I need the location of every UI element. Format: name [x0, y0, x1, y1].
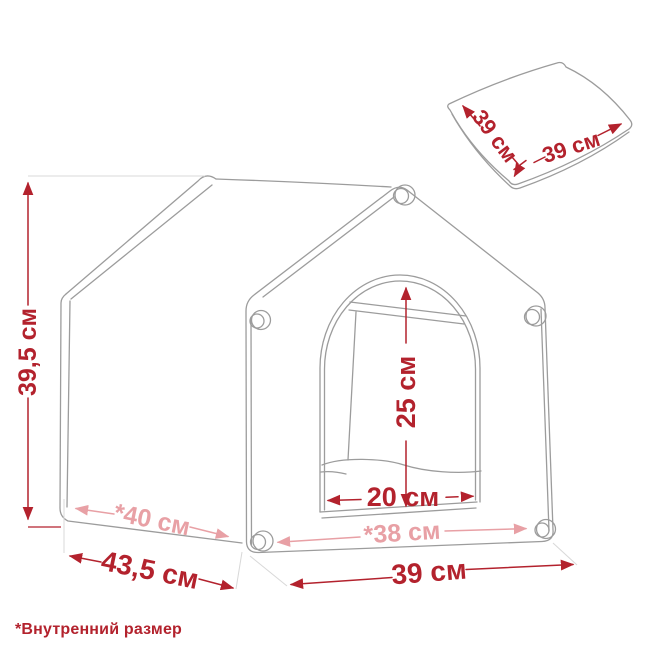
- door-width-dimension-label: 20 см: [367, 482, 440, 512]
- house-height-dimension-label: 39,5 см: [14, 308, 42, 396]
- depth-right-extension: [236, 552, 242, 589]
- side-wall-inner-edge: [67, 301, 70, 507]
- internal-depth-dimension-label: *40 см: [112, 499, 193, 542]
- front-panel-left-edge-inner: [251, 318, 252, 545]
- house-drawing: [60, 176, 556, 553]
- roof-back-edge: [66, 176, 216, 294]
- house-depth-dimension-label: 43,5 см: [99, 545, 202, 595]
- width-right-extension: [553, 543, 577, 565]
- door-height-dimension-label: 25 см: [391, 356, 421, 429]
- internal-width-dimension-label: *38 см: [363, 517, 441, 550]
- roof-ridge-line: [216, 179, 391, 187]
- roof-back-edge-inner: [71, 185, 212, 299]
- pet-house-dimension-drawing: 39,5 см 43,5 см *40 см *38 см 39 см 25 с…: [0, 0, 650, 650]
- house-width-dimension-label: 39 см: [390, 554, 467, 591]
- width-left-extension: [250, 556, 287, 586]
- dimension-diagram: 39,5 см 43,5 см *40 см *38 см 39 см 25 с…: [0, 0, 650, 650]
- internal-size-footnote: *Внутренний размер: [15, 621, 182, 638]
